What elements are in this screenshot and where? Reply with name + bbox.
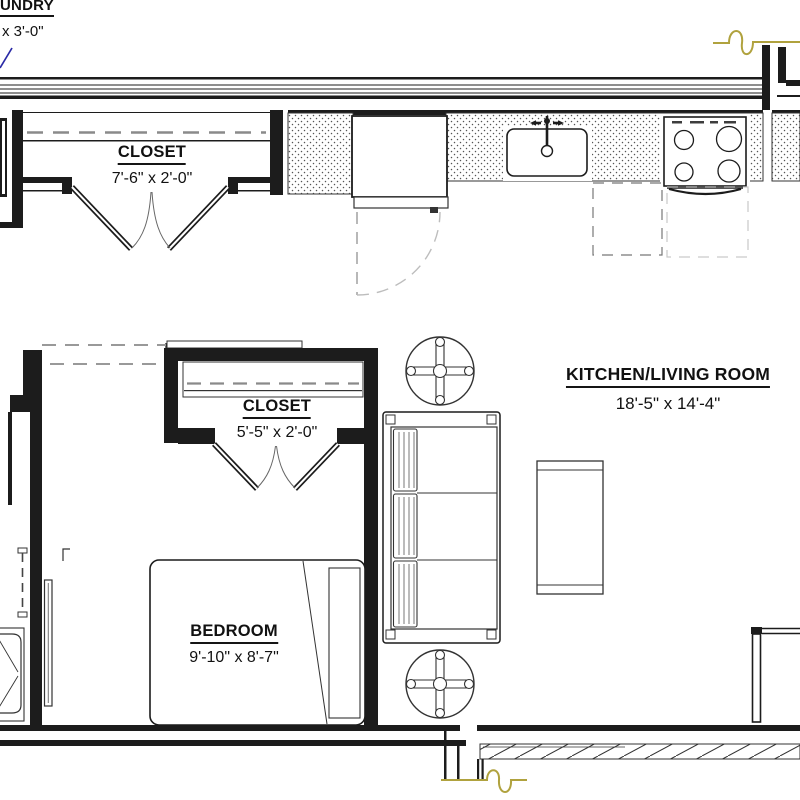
sofa-back-cushions — [394, 429, 418, 627]
bedroom-entry-header — [42, 345, 166, 364]
sofa — [383, 412, 500, 643]
room-name: CLOSET — [243, 397, 311, 419]
sliding-door-leaf — [45, 580, 53, 706]
coffee-table — [537, 461, 603, 594]
top-right-wall-corner — [762, 45, 800, 110]
room-dims: 9'-10" x 8'-7" — [189, 649, 279, 667]
round-end-table-top — [406, 337, 474, 405]
patio-door — [751, 627, 800, 722]
laundry-leader-line — [0, 48, 12, 68]
round-end-table-bottom — [406, 650, 474, 718]
bifold-closet-doors — [214, 444, 338, 489]
bifold-closet-doors — [72, 187, 228, 249]
room-dims: 18'-5" x 14'-4" — [566, 394, 770, 414]
room-label-kitchen-living: KITCHEN/LIVING ROOM 18'-5" x 14'-4" — [566, 364, 770, 414]
room-name: BEDROOM — [190, 622, 278, 644]
break-line-bottom — [441, 770, 527, 792]
range-stove — [660, 114, 750, 194]
pillow — [329, 568, 360, 718]
room-label-closet-middle: CLOSET 5'-5" x 2'-0" — [237, 397, 318, 442]
room-name: CLOSET — [118, 143, 186, 165]
room-name: KITCHEN/LIVING ROOM — [566, 364, 770, 388]
shower — [0, 628, 24, 721]
room-label-laundry: UNDRY x 3'-0" — [0, 0, 54, 40]
appliance-clearances — [593, 183, 748, 257]
break-line-top — [713, 31, 800, 54]
room-dims: 7'-6" x 2'-0" — [112, 170, 193, 188]
room-label-bedroom: BEDROOM 9'-10" x 8'-7" — [189, 622, 279, 667]
room-dims: x 3'-0" — [0, 23, 54, 40]
room-label-closet-top: CLOSET 7'-6" x 2'-0" — [112, 143, 193, 188]
floor-plan: UNDRY x 3'-0" CLOSET 7'-6" x 2'-0" CLOSE… — [0, 0, 800, 800]
balcony-deck — [477, 744, 800, 781]
room-dims: 5'-5" x 2'-0" — [237, 424, 318, 442]
refrigerator — [352, 116, 448, 295]
room-name: UNDRY — [0, 0, 54, 17]
fridge-door-swing — [357, 212, 440, 295]
top-exterior-wall — [0, 77, 763, 99]
